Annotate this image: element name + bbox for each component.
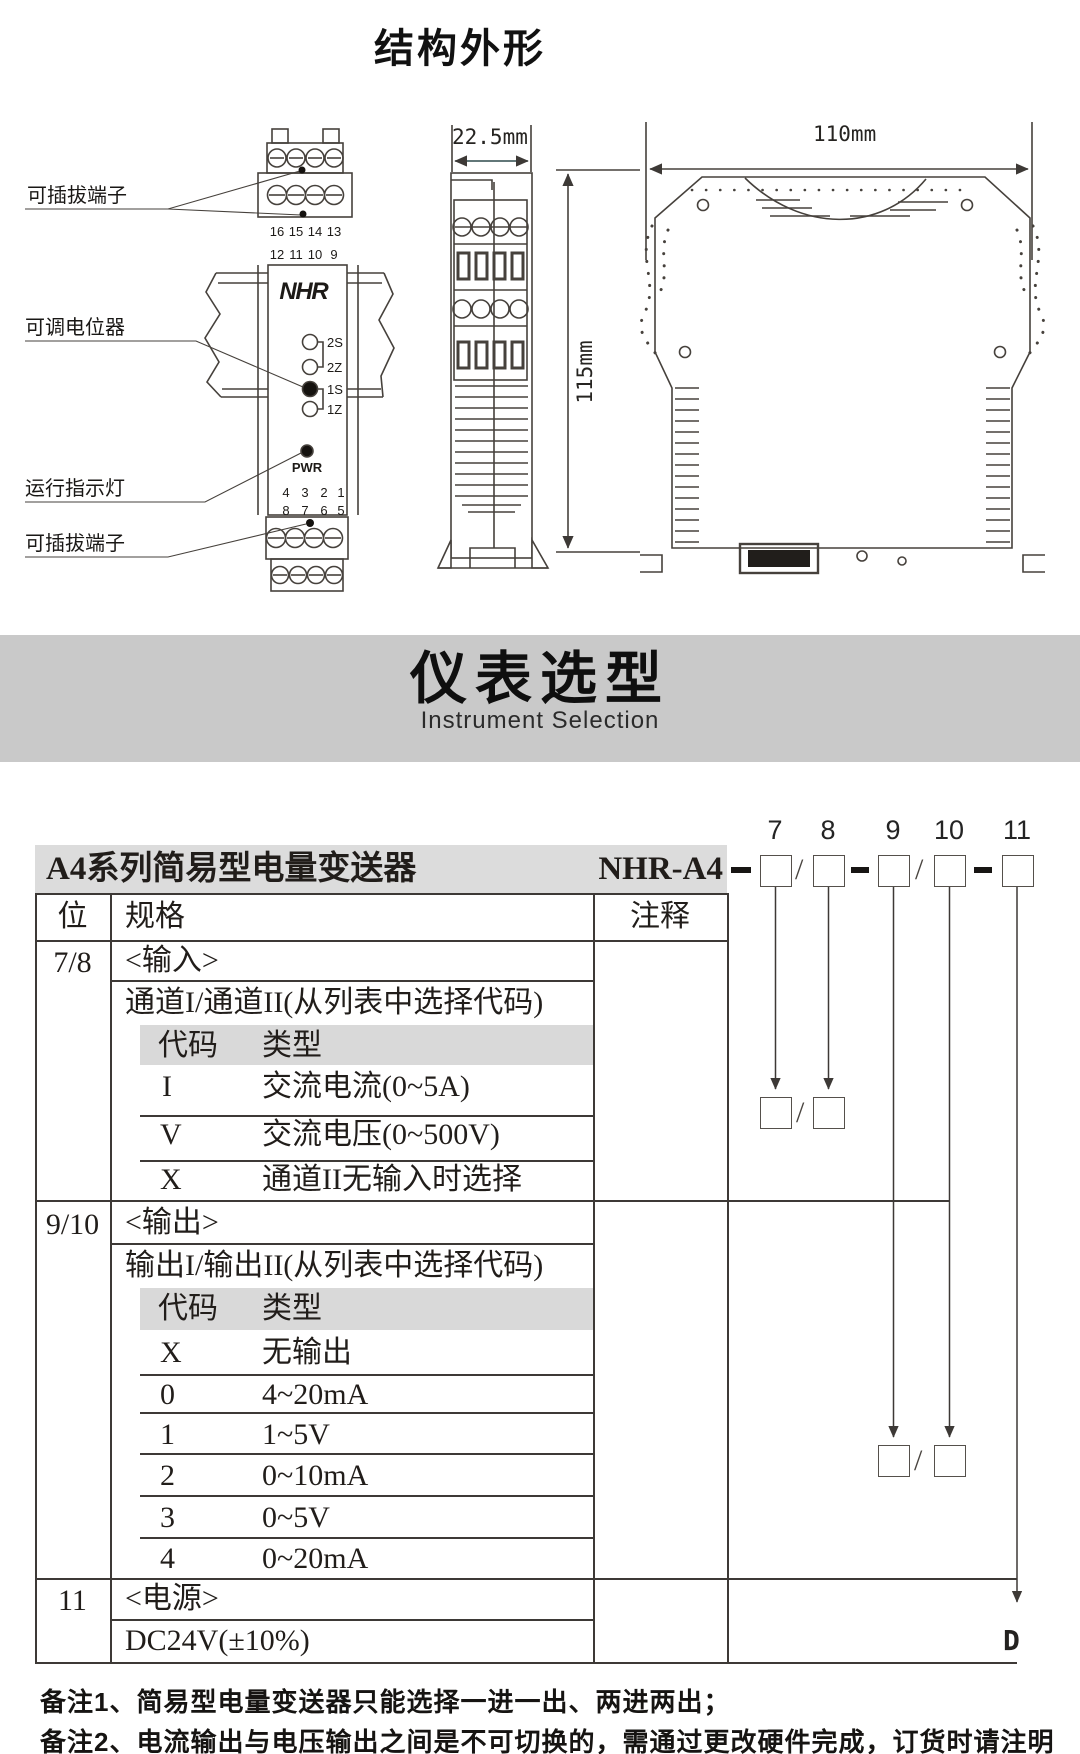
model-code: NHR-A4 [580,850,723,888]
trim-potentiometers [303,335,324,417]
table-line [727,893,729,1662]
col-code: 代码 [158,1290,218,1328]
terminal-11: 11 [289,247,303,262]
code-box-8 [813,855,845,887]
row-type: 交流电压(0~500V) [262,1116,500,1154]
brand-letter-r: R [311,278,329,305]
terminal-16: 16 [270,224,284,239]
banner-title: 仪表选型 [0,649,1080,709]
pos-9: 9 [871,815,915,846]
terminal-numbers-top: 16 15 14 13 12 11 10 9 [270,224,341,262]
pos-10: 10 [927,815,971,846]
terminal-1: 1 [337,485,344,500]
instrument-selection-banner: 仪表选型 Instrument Selection [0,635,1080,762]
slash: / [914,1444,922,1478]
slash: / [796,1096,804,1130]
row-type: 无输出 [262,1334,352,1372]
row-code: I [162,1068,172,1106]
terminal-6: 6 [320,503,327,518]
power-code-d: D [1003,1624,1020,1657]
terminal-2: 2 [320,485,327,500]
section-pos: 11 [35,1582,110,1620]
power-spec: DC24V(±10%) [125,1622,310,1660]
dim-label-22-5mm: 22.5mm [452,125,528,149]
code-box-10 [934,855,966,887]
terminal-numbers-bottom: 4 3 2 1 8 7 6 5 [282,485,344,518]
header-pos: 位 [35,898,110,936]
terminal-12: 12 [270,247,284,262]
row-code: V [160,1116,182,1154]
pwr-label: PWR [292,460,323,475]
pos-7: 7 [753,815,797,846]
row-code: X [160,1161,182,1199]
row-type: 0~10mA [262,1457,368,1495]
col-code: 代码 [158,1027,218,1065]
side-view [438,125,548,568]
note-1: 备注1、简易型电量变送器只能选择一进一出、两进两出； [40,1682,730,1719]
terminal-5: 5 [337,503,344,518]
terminal-10: 10 [308,247,322,262]
slash: / [795,853,803,887]
terminal-block-bottom [266,517,348,591]
dim-label-110mm: 110mm [813,122,876,146]
table-line [140,1495,593,1497]
dash [974,867,992,873]
led-2s: 2S [327,335,343,350]
dim-label-115mm: 115mm [573,340,597,403]
terminal-3: 3 [301,485,308,500]
header-note: 注释 [593,898,727,936]
structure-drawing: 可插拔端子 可调电位器 运行指示灯 可插拔端子 22.5mm 110mm 115… [0,0,1080,640]
brand-logo: N H R [279,278,329,305]
table-line [140,1537,593,1539]
table-line [110,1619,593,1621]
product-name: A4系列简易型电量变送器 [46,850,416,888]
pos-11: 11 [995,815,1039,846]
dim-115mm [556,170,640,552]
section-title: <输入> [125,942,219,980]
input-code-box-2 [813,1097,845,1129]
banner-subtitle: Instrument Selection [0,707,1080,735]
row-code: 0 [160,1376,175,1414]
terminal-9: 9 [330,247,337,262]
input-code-box-1 [760,1097,792,1129]
row-code: 2 [160,1457,175,1495]
led-1z: 1Z [327,402,342,417]
output-code-box-1 [878,1445,910,1477]
col-type: 类型 [262,1290,322,1328]
row-type: 0~5V [262,1499,330,1537]
dash [731,867,751,873]
slash: / [915,853,923,887]
dash [851,867,869,873]
terminal-7: 7 [301,503,308,518]
right-view [640,122,1045,573]
table-line [35,1200,949,1202]
code-box-9 [878,855,910,887]
label-run-indicator: 运行指示灯 [25,477,125,500]
table-line [35,893,37,1662]
col-type: 类型 [262,1027,322,1065]
row-type: 交流电流(0~5A) [262,1068,470,1106]
terminal-13: 13 [327,224,341,239]
section-subtitle: 输出I/输出II(从列表中选择代码) [125,1247,543,1285]
terminal-8: 8 [282,503,289,518]
terminal-15: 15 [289,224,303,239]
label-pluggable-terminal-bottom: 可插拔端子 [25,532,125,555]
code-box-11 [1002,855,1034,887]
terminal-4: 4 [282,485,289,500]
led-1s: 1S [327,382,343,397]
table-line [35,1662,1017,1664]
row-type: 4~20mA [262,1376,368,1414]
row-code: 4 [160,1540,175,1578]
mount-ear [323,129,339,143]
row-type: 通道II无输入时选择 [262,1161,522,1199]
row-type: 1~5V [262,1416,330,1454]
table-line [593,893,595,1662]
table-line [110,980,593,982]
row-type: 0~20mA [262,1540,368,1578]
code-box-7 [760,855,792,887]
row-code: 3 [160,1499,175,1537]
label-pluggable-terminal-top: 可插拔端子 [27,184,127,207]
section-pos: 7/8 [35,944,110,982]
label-potentiometer: 可调电位器 [25,316,125,339]
header-spec: 规格 [125,898,185,936]
terminal-14: 14 [308,224,322,239]
table-line [110,893,112,1662]
table-line [35,893,727,895]
output-code-box-2 [934,1445,966,1477]
table-line [110,1243,593,1245]
note-2: 备注2、电流输出与电压输出之间是不可切换的，需通过更改硬件完成，订货时请注明 [40,1722,1054,1754]
section-title: <输出> [125,1204,219,1242]
datasheet-page: 结构外形 [0,0,1080,1754]
section-pos: 9/10 [35,1206,110,1244]
pos-8: 8 [806,815,850,846]
row-code: X [160,1334,182,1372]
mount-ear [272,129,288,143]
row-code: 1 [160,1416,175,1454]
table-line [140,1453,593,1455]
section-title: <电源> [125,1580,219,1618]
power-led [301,445,313,457]
section-subtitle: 通道I/通道II(从列表中选择代码) [125,984,543,1022]
terminal-block-top [258,143,352,217]
led-2z: 2Z [327,360,342,375]
